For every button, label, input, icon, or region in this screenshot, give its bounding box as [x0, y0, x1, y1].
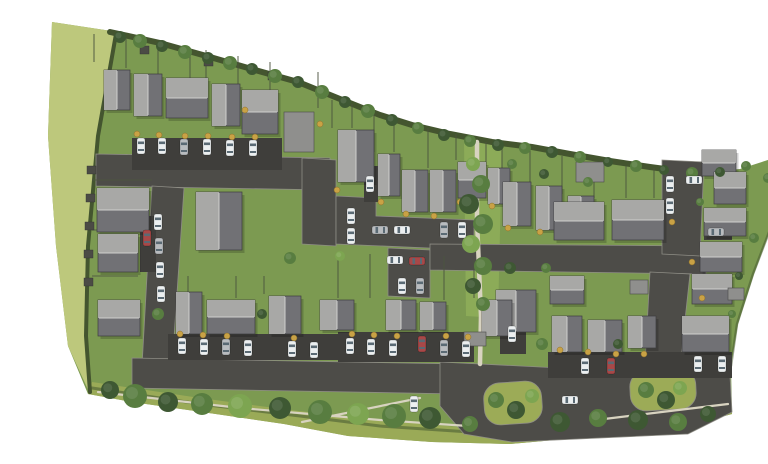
shrub	[229, 134, 235, 140]
shrub	[156, 132, 162, 138]
tree-highlight	[466, 137, 472, 143]
site-plan	[40, 16, 768, 448]
shrub	[489, 203, 495, 209]
roof-sunlit-slope	[536, 186, 549, 230]
car-windshield	[566, 397, 569, 403]
car-rear-window	[201, 350, 207, 352]
roof-sunlit-slope	[104, 70, 117, 110]
car	[440, 340, 448, 356]
tree-highlight	[158, 42, 164, 48]
shrub	[557, 347, 563, 353]
car-windshield	[204, 143, 210, 146]
tree-highlight	[632, 162, 638, 168]
car-windshield	[156, 242, 162, 245]
car-windshield	[289, 345, 295, 348]
tree-highlight	[350, 406, 361, 417]
car-rear-window	[250, 151, 256, 153]
car-rear-window	[144, 241, 150, 243]
shrub	[689, 259, 695, 265]
tree-highlight	[248, 65, 254, 71]
garden-shed	[85, 222, 94, 230]
car-rear-window	[181, 150, 187, 152]
car	[366, 176, 374, 192]
tree-highlight	[584, 178, 589, 183]
car-windshield	[368, 343, 374, 346]
car-rear-window	[138, 149, 144, 151]
car-windshield	[398, 227, 401, 233]
tree-highlight	[702, 408, 710, 416]
car-rear-window	[245, 351, 251, 353]
car-rear-window	[368, 350, 374, 352]
roof-sunlit-slope	[196, 192, 219, 250]
car-rear-window	[348, 239, 354, 241]
car-rear-window	[157, 273, 163, 275]
tree-highlight	[272, 400, 283, 411]
shrub	[403, 211, 409, 217]
tree-highlight	[464, 418, 472, 426]
roof-sunlit-slope	[550, 276, 584, 290]
car-windshield	[419, 340, 425, 343]
car	[155, 238, 163, 254]
shrub	[394, 333, 400, 339]
car	[708, 228, 724, 236]
car-windshield	[441, 344, 447, 347]
tree-highlight	[225, 58, 232, 65]
car-windshield	[348, 232, 354, 235]
car-windshield	[712, 229, 715, 235]
car	[410, 396, 418, 412]
tree-highlight	[341, 98, 347, 104]
garden-shed	[84, 278, 93, 286]
roof-sunlit-slope	[166, 78, 208, 98]
car	[137, 138, 145, 154]
car-windshield	[347, 342, 353, 345]
car-rear-window	[719, 229, 721, 235]
car	[158, 138, 166, 154]
roof-sunlit-slope	[430, 170, 443, 212]
car	[508, 326, 516, 342]
car-windshield	[667, 180, 673, 183]
shrub	[134, 131, 140, 137]
car-windshield	[441, 226, 447, 229]
tree-highlight	[270, 71, 277, 78]
car	[178, 338, 186, 354]
car-rear-window	[667, 187, 673, 189]
tree-highlight	[476, 259, 485, 268]
car-rear-window	[697, 177, 699, 183]
roof-sunlit-slope	[700, 242, 742, 257]
car-windshield	[667, 202, 673, 205]
tree-highlight	[604, 158, 609, 163]
tree-highlight	[660, 166, 665, 171]
car-rear-window	[156, 249, 162, 251]
car-rear-window	[441, 233, 447, 235]
tree-highlight	[640, 384, 648, 392]
roof-sunlit-slope	[98, 300, 140, 318]
car-rear-window	[348, 219, 354, 221]
roof-sunlit-slope	[588, 320, 605, 352]
tree-highlight	[204, 54, 210, 60]
tree-highlight	[440, 131, 446, 137]
car	[347, 228, 355, 244]
tree-highlight	[553, 415, 563, 425]
car-windshield	[417, 282, 423, 285]
tree-highlight	[468, 159, 475, 166]
car-windshield	[250, 144, 256, 147]
car-rear-window	[459, 233, 465, 235]
roof-sunlit-slope	[704, 208, 746, 222]
tree-highlight	[414, 124, 420, 130]
car	[347, 208, 355, 224]
tree-highlight	[467, 280, 475, 288]
roof-sunlit-slope	[702, 150, 736, 163]
tree-highlight	[116, 33, 122, 39]
car	[458, 222, 466, 238]
tree-highlight	[736, 273, 740, 277]
car	[440, 222, 448, 238]
garage	[728, 288, 744, 300]
roof-sunlit-slope	[98, 234, 138, 253]
car-rear-window	[509, 337, 515, 339]
roof-sunlit-slope	[554, 202, 604, 221]
shrub	[177, 331, 183, 337]
tree-highlight	[363, 106, 370, 113]
tree-highlight	[508, 160, 513, 165]
tree-highlight	[478, 299, 485, 306]
car-windshield	[159, 142, 165, 145]
shrub	[242, 107, 248, 113]
car-rear-window	[398, 257, 400, 263]
tree-highlight	[542, 264, 547, 269]
tree-highlight	[631, 413, 641, 423]
roof-sunlit-slope	[207, 300, 255, 317]
shrub	[291, 335, 297, 341]
site-plan-rendering	[40, 16, 768, 448]
roof-sunlit-slope	[692, 274, 732, 289]
car	[249, 140, 257, 156]
car	[694, 356, 702, 372]
tree-highlight	[385, 407, 397, 419]
car	[416, 278, 424, 294]
tree-highlight	[286, 254, 292, 260]
car-rear-window	[158, 297, 164, 299]
shrub	[252, 134, 258, 140]
shrub	[349, 331, 355, 337]
tree-highlight	[464, 237, 473, 246]
car	[156, 262, 164, 278]
car-rear-window	[227, 151, 233, 153]
tree-highlight	[154, 310, 160, 316]
car-rear-window	[347, 349, 353, 351]
car	[387, 256, 403, 264]
car-rear-window	[463, 352, 469, 354]
tree-highlight	[103, 383, 112, 392]
car-windshield	[391, 257, 394, 263]
tree-highlight	[521, 144, 527, 150]
car	[666, 176, 674, 192]
tree-highlight	[614, 340, 619, 345]
car-rear-window	[311, 353, 317, 355]
car-rear-window	[383, 227, 385, 233]
car-windshield	[201, 343, 207, 346]
tree-highlight	[697, 199, 701, 203]
car-rear-window	[608, 369, 614, 371]
car-windshield	[155, 218, 161, 221]
car-rear-window	[420, 258, 422, 264]
car-rear-window	[419, 347, 425, 349]
tree-highlight	[388, 116, 394, 122]
roof-sunlit-slope	[338, 130, 356, 182]
car-windshield	[311, 346, 317, 349]
tree-highlight	[742, 162, 747, 167]
car-rear-window	[399, 289, 405, 291]
car	[203, 139, 211, 155]
garden-shed	[84, 250, 93, 258]
car	[372, 226, 388, 234]
car	[394, 226, 410, 234]
roof-sunlit-slope	[320, 300, 337, 330]
car-rear-window	[667, 209, 673, 211]
road	[302, 158, 336, 246]
tree-highlight	[336, 252, 341, 257]
car	[367, 339, 375, 355]
garden-shed	[87, 166, 96, 174]
car-rear-window	[441, 351, 447, 353]
shrub	[371, 332, 377, 338]
car	[200, 339, 208, 355]
car-rear-window	[367, 187, 373, 189]
tree-highlight	[135, 36, 142, 43]
shrub	[224, 333, 230, 339]
shrub	[182, 133, 188, 139]
car-windshield	[157, 266, 163, 269]
road	[132, 358, 460, 394]
tree-highlight	[538, 340, 544, 346]
shrub	[378, 199, 384, 205]
car	[222, 339, 230, 355]
car-windshield	[179, 342, 185, 345]
car-windshield	[376, 227, 379, 233]
driveway	[338, 332, 474, 362]
tree-highlight	[659, 393, 668, 402]
car-windshield	[690, 177, 693, 183]
roof-sunlit-slope	[402, 170, 415, 212]
car	[686, 176, 702, 184]
tree-highlight	[294, 78, 300, 84]
car-rear-window	[223, 350, 229, 352]
shrub	[465, 334, 471, 340]
car-windshield	[138, 142, 144, 145]
shrub	[200, 332, 206, 338]
car	[418, 336, 426, 352]
car-windshield	[348, 212, 354, 215]
car-rear-window	[582, 369, 588, 371]
roof-sunlit-slope	[420, 302, 433, 330]
car-rear-window	[695, 367, 701, 369]
car	[154, 214, 162, 230]
roof-sunlit-slope	[386, 300, 401, 330]
tree-highlight	[311, 403, 323, 415]
shrub	[641, 351, 647, 357]
car	[409, 257, 425, 265]
car-rear-window	[405, 227, 407, 233]
tree-highlight	[591, 411, 600, 420]
car	[288, 341, 296, 357]
tree-highlight	[716, 168, 721, 173]
car	[562, 396, 578, 404]
tree-highlight	[548, 148, 554, 154]
car-windshield	[390, 344, 396, 347]
shrub	[317, 121, 323, 127]
roof-sunlit-slope	[212, 84, 226, 126]
shrub	[613, 351, 619, 357]
shrub	[537, 229, 543, 235]
car	[346, 338, 354, 354]
shrub	[431, 213, 437, 219]
roof-sunlit-slope	[97, 188, 149, 210]
car-rear-window	[411, 407, 417, 409]
car-rear-window	[417, 289, 423, 291]
car-windshield	[181, 143, 187, 146]
tree-highlight	[180, 47, 187, 54]
garden-shed	[86, 194, 95, 202]
car-rear-window	[159, 149, 165, 151]
shrub	[699, 295, 705, 301]
car-windshield	[411, 400, 417, 403]
shrub	[669, 219, 675, 225]
car-rear-window	[390, 351, 396, 353]
tree-highlight	[688, 169, 694, 175]
tree-highlight	[675, 383, 682, 390]
car-windshield	[245, 344, 251, 347]
car-rear-window	[573, 397, 575, 403]
roof-sunlit-slope	[176, 292, 189, 334]
car	[607, 358, 615, 374]
car	[666, 198, 674, 214]
roof-sunlit-slope	[378, 154, 389, 196]
car-windshield	[223, 343, 229, 346]
tree-highlight	[194, 396, 205, 407]
roof-sunlit-slope	[134, 74, 148, 116]
roof-sunlit-slope	[628, 316, 642, 348]
tree-highlight	[490, 394, 498, 402]
car-windshield	[227, 144, 233, 147]
tree-highlight	[494, 141, 500, 147]
car-rear-window	[179, 349, 185, 351]
car	[398, 278, 406, 294]
car-windshield	[144, 234, 150, 237]
tree-highlight	[317, 87, 324, 94]
car-windshield	[608, 362, 614, 365]
tree-highlight	[576, 153, 582, 159]
roof-sunlit-slope	[552, 316, 567, 352]
shrub	[334, 187, 340, 193]
car	[310, 342, 318, 358]
garage	[630, 280, 648, 294]
car-windshield	[158, 290, 164, 293]
car	[389, 340, 397, 356]
garage	[284, 112, 314, 152]
tree-highlight	[671, 415, 680, 424]
roof-sunlit-slope	[612, 200, 664, 220]
tree-highlight	[161, 395, 171, 405]
car-rear-window	[719, 367, 725, 369]
car-windshield	[582, 362, 588, 365]
roof-sunlit-slope	[682, 316, 729, 334]
car-windshield	[367, 180, 373, 183]
tree-highlight	[540, 170, 545, 175]
car	[143, 230, 151, 246]
car-rear-window	[289, 352, 295, 354]
tree-highlight	[258, 310, 263, 315]
shrub	[443, 333, 449, 339]
car-rear-window	[155, 225, 161, 227]
driveway	[168, 334, 346, 360]
car-windshield	[413, 258, 416, 264]
shrub	[505, 225, 511, 231]
car	[180, 139, 188, 155]
tree-highlight	[474, 177, 483, 186]
tree-highlight	[422, 410, 433, 421]
car	[462, 341, 470, 357]
roof-sunlit-slope	[269, 296, 285, 334]
car-windshield	[509, 330, 515, 333]
car-windshield	[459, 226, 465, 229]
car	[226, 140, 234, 156]
driveway	[548, 352, 732, 378]
shrub	[205, 133, 211, 139]
car-windshield	[695, 360, 701, 363]
tree-highlight	[750, 234, 755, 239]
car	[581, 358, 589, 374]
tree-highlight	[126, 387, 138, 399]
car-windshield	[399, 282, 405, 285]
car	[718, 356, 726, 372]
car	[244, 340, 252, 356]
tree-highlight	[476, 217, 486, 227]
tree-highlight	[231, 397, 243, 409]
tree-highlight	[509, 403, 518, 412]
car-windshield	[719, 360, 725, 363]
tree-highlight	[527, 391, 534, 398]
car	[157, 286, 165, 302]
roof-sunlit-slope	[503, 182, 517, 226]
car-windshield	[463, 345, 469, 348]
tree-highlight	[506, 264, 512, 270]
shrub	[585, 349, 591, 355]
tree-highlight	[729, 311, 733, 315]
tree-highlight	[462, 197, 472, 207]
car-rear-window	[204, 150, 210, 152]
